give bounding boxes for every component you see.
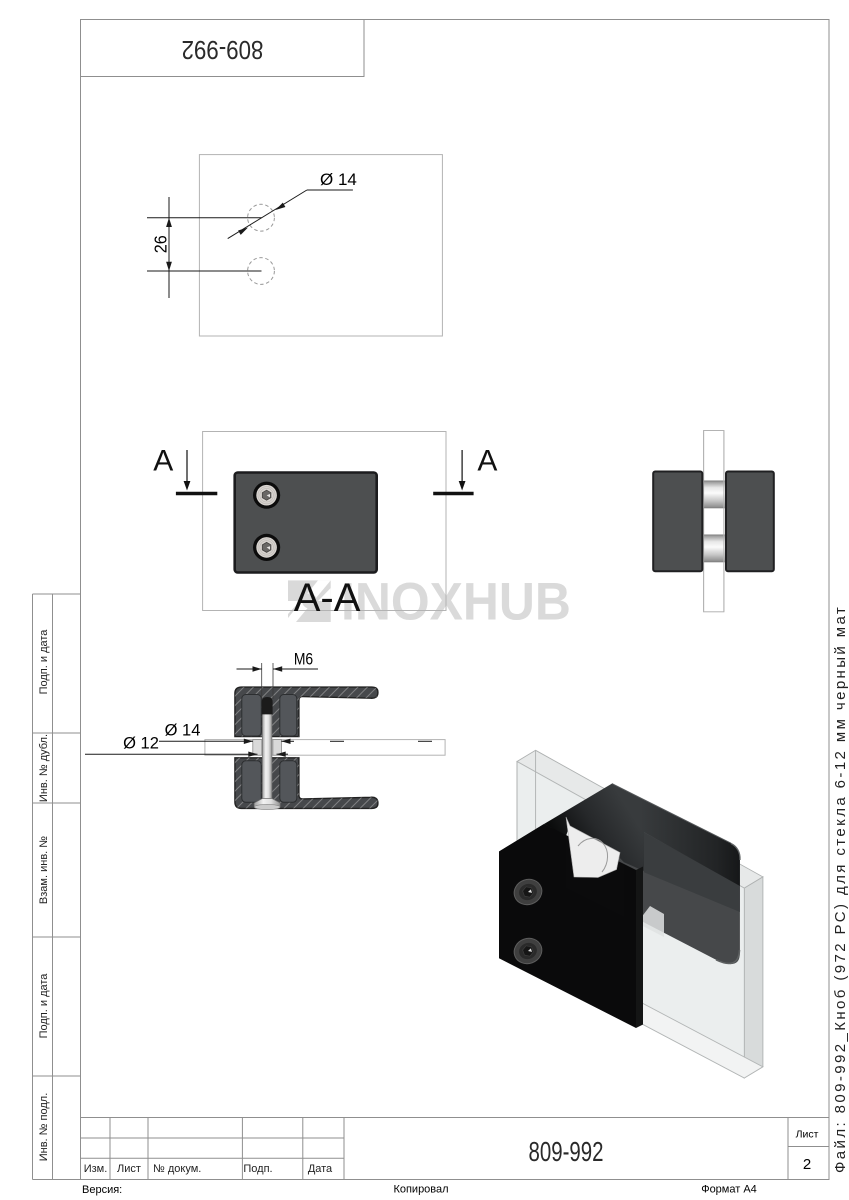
svg-text:№ докум.: № докум. <box>153 1163 201 1175</box>
svg-text:Версия:: Версия: <box>82 1184 122 1196</box>
svg-text:A-A: A-A <box>294 576 361 620</box>
svg-text:A: A <box>477 445 497 478</box>
svg-text:Ø 14: Ø 14 <box>320 170 357 189</box>
svg-text:INOXHUB: INOXHUB <box>341 572 571 630</box>
svg-text:Ø 12: Ø 12 <box>123 735 159 753</box>
svg-text:A: A <box>153 445 173 478</box>
svg-text:Формат А4: Формат А4 <box>701 1184 757 1196</box>
svg-text:M6: M6 <box>294 650 313 669</box>
svg-text:Подп. и дата: Подп. и дата <box>38 629 50 695</box>
svg-text:Файл: 809-992_Кноб (972 РС) дл: Файл: 809-992_Кноб (972 РС) для стекла 6… <box>832 605 849 1173</box>
svg-text:Инв. № подл.: Инв. № подл. <box>38 1093 50 1162</box>
svg-text:809-992: 809-992 <box>529 1137 604 1168</box>
svg-text:Дата: Дата <box>308 1163 333 1175</box>
svg-text:Лист: Лист <box>117 1163 141 1175</box>
svg-text:809-992: 809-992 <box>182 35 264 64</box>
svg-text:26: 26 <box>151 235 171 253</box>
svg-text:Подп. и дата: Подп. и дата <box>38 973 50 1039</box>
svg-text:Ø 14: Ø 14 <box>165 722 201 740</box>
svg-text:Подп.: Подп. <box>243 1163 272 1175</box>
svg-text:Взам. инв. №: Взам. инв. № <box>38 836 50 904</box>
svg-text:Инв. № дубл.: Инв. № дубл. <box>38 734 50 802</box>
svg-text:2: 2 <box>803 1156 811 1173</box>
svg-text:Копировал: Копировал <box>393 1184 448 1196</box>
svg-text:Лист: Лист <box>796 1129 819 1141</box>
svg-text:Изм.: Изм. <box>84 1163 108 1175</box>
